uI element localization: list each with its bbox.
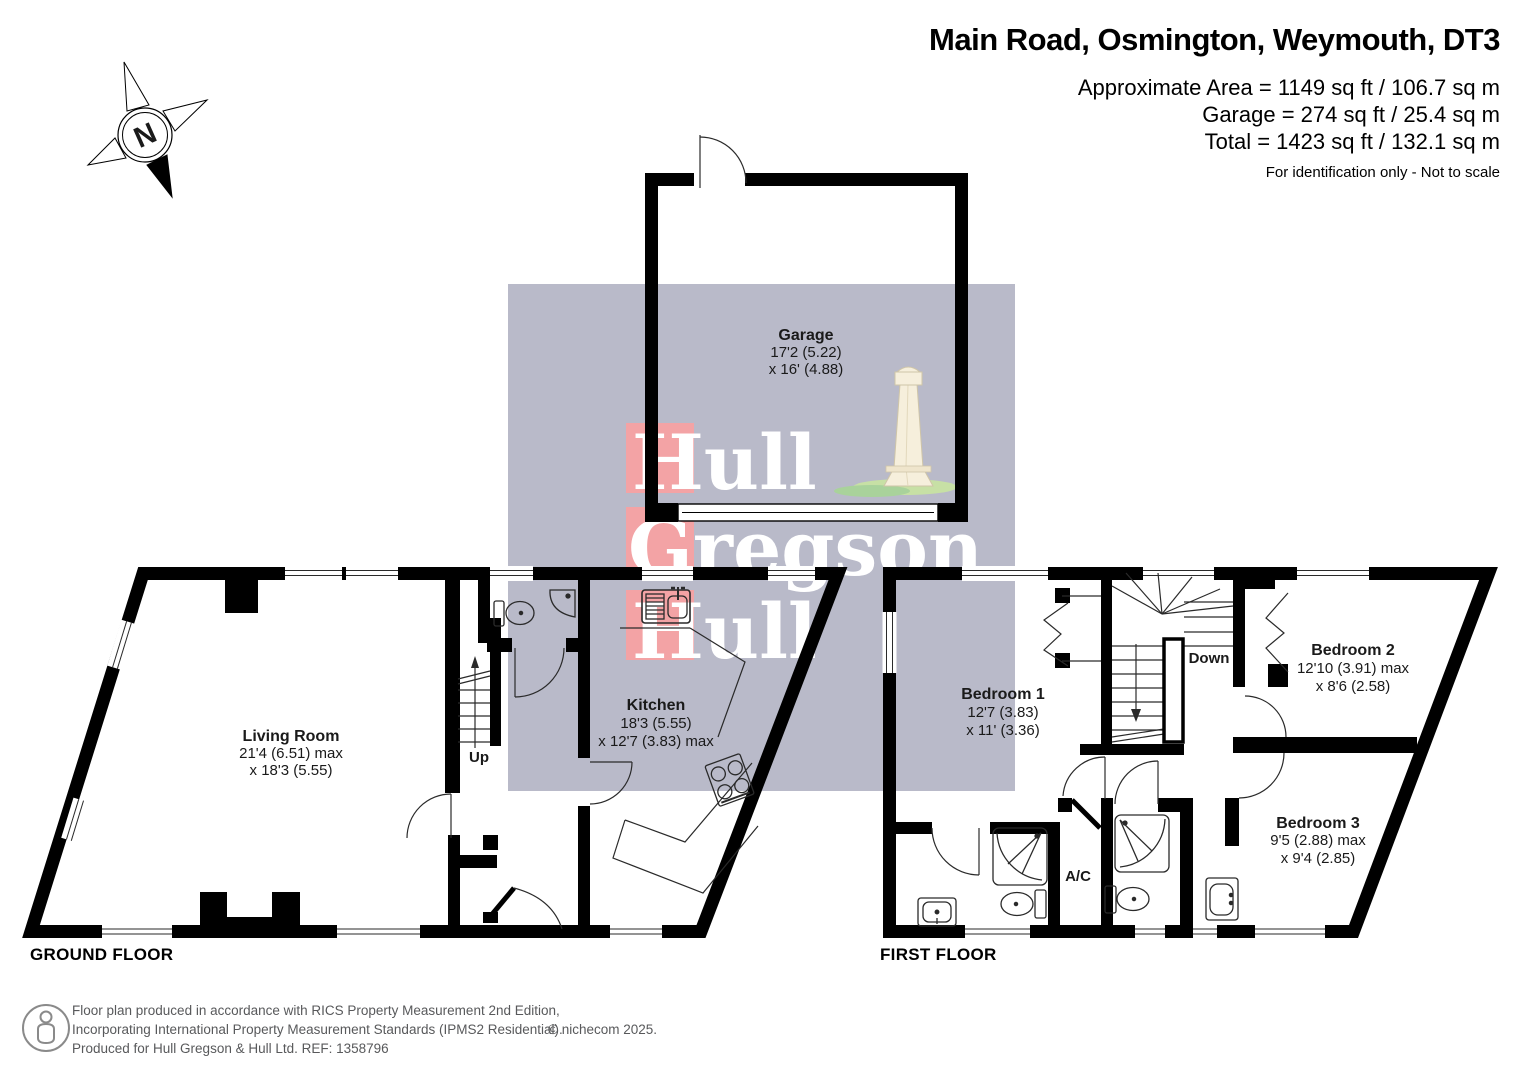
window bbox=[490, 566, 533, 581]
garage-room-label: Garage 17'2 (5.22) x 16' (4.88) bbox=[769, 327, 844, 378]
window bbox=[107, 620, 136, 671]
page-title: Main Road, Osmington, Weymouth, DT3 bbox=[929, 22, 1500, 58]
garage-door-icon bbox=[678, 504, 938, 521]
stair-arrow-up-icon bbox=[471, 656, 479, 668]
door-swing-arc bbox=[932, 828, 979, 875]
interior-wall bbox=[1245, 737, 1417, 753]
door-swing-arc bbox=[1239, 753, 1284, 798]
stairs-down-label: Down bbox=[1189, 650, 1230, 667]
header: Main Road, Osmington, Weymouth, DT3 Appr… bbox=[929, 22, 1500, 181]
floorplan-page: Main Road, Osmington, Weymouth, DT3 Appr… bbox=[0, 0, 1527, 1080]
window bbox=[883, 612, 897, 673]
bedroom2-label: Bedroom 2 12'10 (3.91) max x 8'6 (2.58) bbox=[1297, 642, 1410, 695]
ac-closet-label: A/C bbox=[1065, 868, 1091, 885]
watermark-word-1: Hull bbox=[632, 418, 817, 507]
room-name: Bedroom 3 bbox=[1276, 815, 1360, 832]
first-floor-label: FIRST FLOOR bbox=[880, 945, 997, 965]
window bbox=[285, 566, 342, 581]
interior-wall bbox=[1101, 573, 1112, 747]
door-swing-arc bbox=[1063, 757, 1105, 796]
stair-newel-wall bbox=[1164, 639, 1183, 742]
window bbox=[102, 924, 172, 939]
north-compass-icon: N bbox=[88, 62, 207, 197]
door-swing-arc bbox=[1115, 761, 1158, 804]
window bbox=[610, 924, 662, 939]
room-dim: 12'7 (3.83) bbox=[967, 704, 1038, 721]
wall-stub bbox=[1233, 737, 1245, 753]
interior-wall bbox=[1180, 812, 1193, 938]
interior-wall bbox=[448, 835, 460, 935]
door-swing-arc bbox=[407, 794, 451, 838]
interior-wall bbox=[1080, 744, 1184, 755]
bedroom1-label: Bedroom 1 12'7 (3.83) x 11' (3.36) bbox=[961, 686, 1045, 739]
shower-icon bbox=[1115, 815, 1169, 872]
room-dim: x 18'3 (5.55) bbox=[250, 762, 333, 779]
scale-disclaimer: For identification only - Not to scale bbox=[929, 164, 1500, 181]
sink-icon bbox=[1206, 878, 1238, 920]
interior-wall bbox=[1233, 578, 1245, 687]
footer-line-3: Produced for Hull Gregson & Hull Ltd. RE… bbox=[72, 1039, 563, 1058]
window bbox=[768, 566, 815, 581]
room-dim: 17'2 (5.22) bbox=[770, 344, 841, 361]
interior-wall bbox=[445, 573, 460, 793]
window bbox=[965, 924, 1030, 939]
room-name: Living Room bbox=[243, 728, 340, 745]
window bbox=[642, 566, 693, 581]
door-swing-arc bbox=[514, 888, 562, 929]
stairs-up-label: Up bbox=[469, 749, 489, 766]
window bbox=[1135, 924, 1165, 939]
copyright: © nichecom 2025. bbox=[548, 1020, 657, 1039]
wall-stub bbox=[487, 638, 512, 652]
room-dim: 21'4 (6.51) max bbox=[239, 745, 343, 762]
interior-wall bbox=[578, 806, 590, 938]
watermark-word-3: Hull bbox=[632, 587, 817, 676]
interior-wall bbox=[578, 573, 590, 758]
window bbox=[962, 566, 1048, 581]
room-dim: x 16' (4.88) bbox=[769, 361, 844, 378]
fireplace-opening bbox=[227, 892, 272, 917]
room-name: Bedroom 2 bbox=[1311, 642, 1395, 659]
ground-floor-label: GROUND FLOOR bbox=[30, 945, 173, 965]
door-swing-arc bbox=[1245, 696, 1286, 737]
chimney-breast bbox=[225, 573, 258, 613]
interior-wall bbox=[478, 573, 490, 643]
interior-wall bbox=[1101, 798, 1113, 938]
bedroom3-label: Bedroom 3 9'5 (2.88) max x 9'4 (2.85) bbox=[1270, 815, 1366, 867]
room-name: Garage bbox=[778, 327, 833, 344]
interior-wall bbox=[490, 618, 501, 746]
window bbox=[1143, 566, 1214, 581]
garage-area: Garage = 274 sq ft / 25.4 sq m bbox=[929, 101, 1500, 128]
room-name: Bedroom 1 bbox=[961, 686, 1045, 703]
window bbox=[337, 924, 420, 939]
total-area: Total = 1423 sq ft / 132.1 sq m bbox=[929, 128, 1500, 155]
shower-icon bbox=[993, 828, 1047, 885]
approximate-area: Approximate Area = 1149 sq ft / 106.7 sq… bbox=[929, 74, 1500, 101]
wall-stub bbox=[483, 835, 498, 850]
room-dim: 18'3 (5.55) bbox=[620, 715, 691, 732]
interior-wall bbox=[1158, 798, 1193, 812]
ac-closet-door-leaf bbox=[1072, 800, 1100, 828]
room-dim: 9'5 (2.88) max bbox=[1270, 832, 1366, 849]
wall-stub bbox=[1225, 798, 1239, 846]
living-room-label: Living Room 21'4 (6.51) max x 18'3 (5.55… bbox=[239, 728, 343, 779]
wardrobe-bifold-icon bbox=[1044, 588, 1101, 668]
footer-line-1: Floor plan produced in accordance with R… bbox=[72, 1001, 563, 1020]
footer: Floor plan produced in accordance with R… bbox=[72, 1001, 563, 1058]
room-dim: x 11' (3.36) bbox=[966, 722, 1039, 739]
room-dim: x 8'6 (2.58) bbox=[1316, 678, 1391, 695]
interior-wall bbox=[896, 822, 932, 834]
staircase-up bbox=[458, 656, 490, 748]
window bbox=[1255, 924, 1325, 939]
interior-wall bbox=[448, 855, 497, 868]
sink-icon bbox=[918, 898, 956, 926]
room-dim: 12'10 (3.91) max bbox=[1297, 660, 1410, 677]
person-icon bbox=[18, 998, 78, 1058]
interior-wall bbox=[1048, 822, 1060, 938]
room-name: Kitchen bbox=[627, 697, 686, 714]
garage-wall-stub bbox=[938, 503, 968, 522]
wall-stub bbox=[566, 638, 590, 652]
footer-line-2: Incorporating International Property Mea… bbox=[72, 1020, 563, 1039]
toilet-icon bbox=[1001, 890, 1046, 918]
front-door-leaf bbox=[489, 888, 514, 918]
room-dim: x 12'7 (3.83) max bbox=[598, 733, 714, 750]
wall-stub bbox=[1058, 798, 1072, 812]
window bbox=[346, 566, 398, 581]
garage-door-opening bbox=[694, 171, 745, 188]
room-dim: x 9'4 (2.85) bbox=[1281, 850, 1356, 867]
window bbox=[1297, 566, 1369, 581]
garage-wall-stub bbox=[645, 503, 678, 522]
